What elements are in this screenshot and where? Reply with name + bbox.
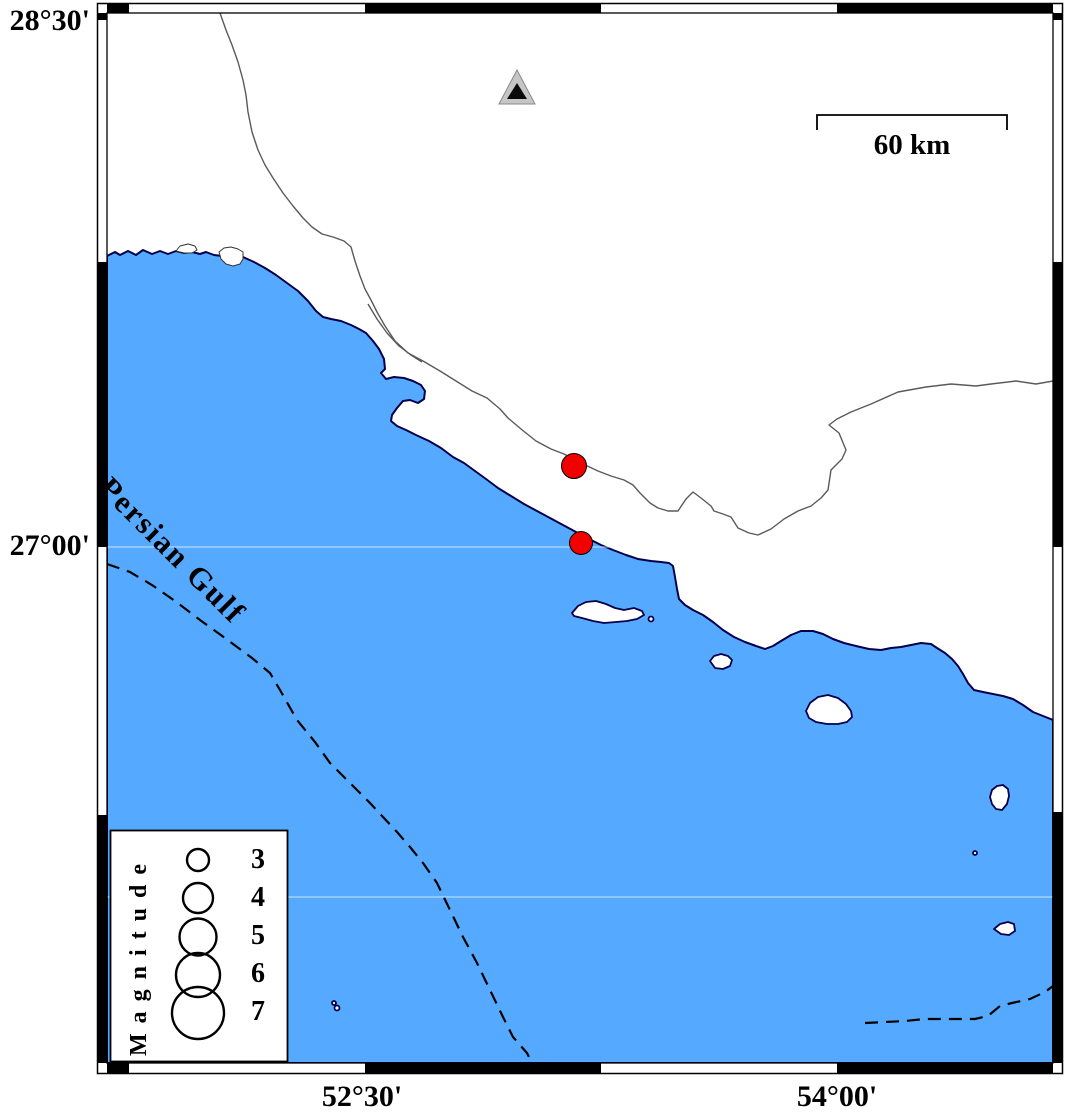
frame-seg-right-0 (1053, 13, 1063, 20)
frame-seg-left-2 (98, 815, 108, 1063)
frame-seg-bottom-1 (107, 1063, 129, 1074)
lat-label-27-00: 27°00' (0, 530, 90, 562)
frame-seg-left-0 (98, 13, 108, 20)
scale-bar-label: 60 km (842, 129, 982, 162)
legend-value-4: 4 (238, 883, 278, 913)
lon-label-52-30: 52°30' (292, 1081, 432, 1113)
frame-seg-top-2 (365, 4, 601, 14)
earthquake-epicenter-marker-1 (562, 454, 587, 479)
legend-title-label: Magnitude (127, 854, 151, 1056)
legend-value-3: 3 (238, 845, 278, 875)
legend-value-6: 6 (238, 959, 278, 989)
frame-seg-bottom-2 (365, 1063, 601, 1074)
legend-value-7: 7 (238, 997, 278, 1027)
legend-value-5: 5 (238, 921, 278, 951)
frame-seg-right-2 (1053, 812, 1063, 1063)
island-small (710, 654, 732, 669)
islet-speck-sw2 (335, 1006, 340, 1011)
island-pear (990, 785, 1009, 810)
frame-seg-right-1 (1053, 262, 1063, 547)
frame-seg-top-1 (107, 4, 129, 14)
islet-speck (973, 851, 977, 855)
map-figure: 28°30' 27°00' 52°30' 54°00' Persian Gulf… (0, 0, 1066, 1115)
lat-label-28-30: 28°30' (0, 5, 90, 37)
lon-label-54-00: 54°00' (767, 1081, 907, 1113)
islet-speck-sw (332, 1001, 336, 1005)
earthquake-epicenter-marker-2 (570, 532, 593, 555)
frame-seg-bottom-3 (837, 1063, 1053, 1074)
islet-dot (649, 617, 654, 622)
frame-seg-top-3 (837, 4, 1053, 14)
